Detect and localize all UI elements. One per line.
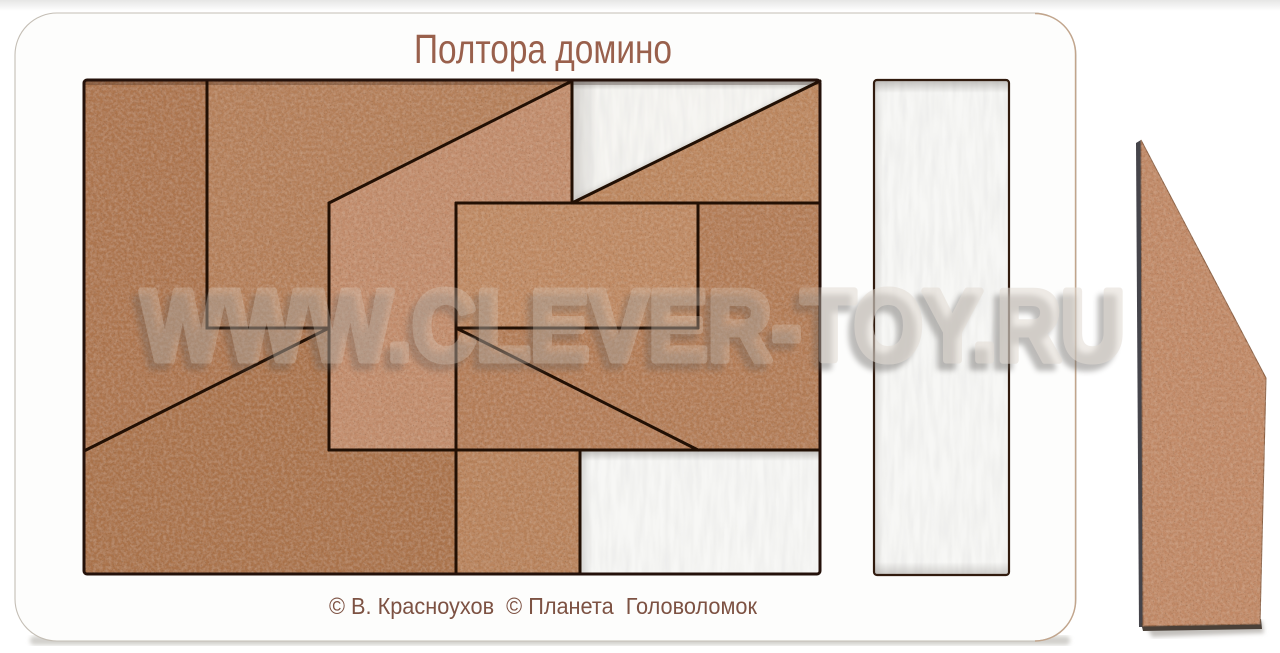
svg-text:© В. Красноухов © Планета Го: © В. Красноухов © Планета Головоломок: [329, 593, 758, 619]
svg-text:Полтора домино: Полтора домино: [414, 26, 672, 72]
